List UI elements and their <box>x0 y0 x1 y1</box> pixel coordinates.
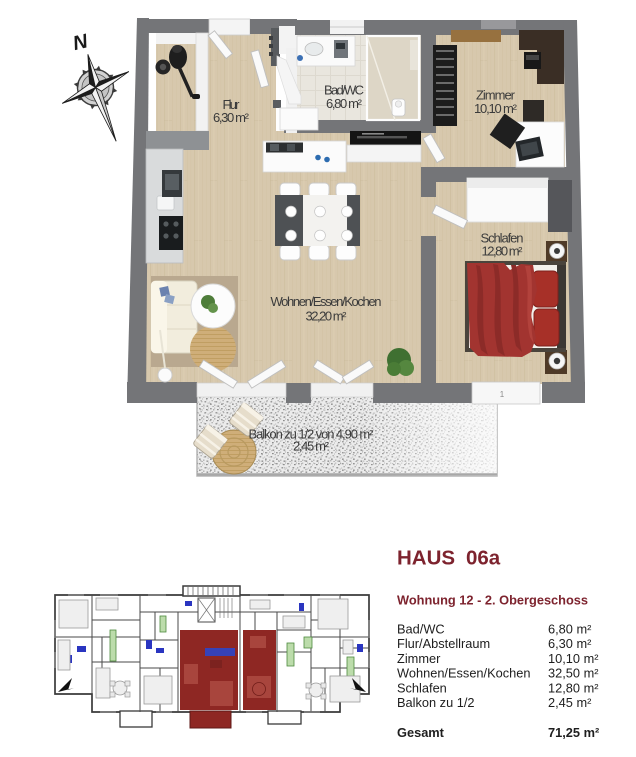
svg-text:6,80 m²: 6,80 m² <box>548 622 592 637</box>
svg-text:2,45 m²: 2,45 m² <box>293 438 330 453</box>
svg-text:10,10 m²: 10,10 m² <box>548 651 599 666</box>
svg-text:6,30 m²: 6,30 m² <box>213 110 250 125</box>
svg-text:1: 1 <box>500 390 505 399</box>
svg-text:32,20 m²: 32,20 m² <box>306 309 348 324</box>
svg-text:12,80 m²: 12,80 m² <box>548 680 599 695</box>
svg-text:10,10 m²: 10,10 m² <box>474 101 518 116</box>
svg-text:Wohnen/Essen/Kochen: Wohnen/Essen/Kochen <box>271 294 382 309</box>
svg-text:Wohnen/Essen/Kochen: Wohnen/Essen/Kochen <box>397 666 531 681</box>
svg-text:HAUS: HAUS <box>397 547 455 570</box>
svg-text:32,50 m²: 32,50 m² <box>548 666 599 681</box>
svg-text:Zimmer: Zimmer <box>397 651 441 666</box>
svg-text:Wohnung 12 - 2. Obergeschoss: Wohnung 12 - 2. Obergeschoss <box>397 593 588 608</box>
svg-text:N: N <box>71 30 91 55</box>
svg-text:06a: 06a <box>466 547 501 570</box>
svg-text:6,30 m²: 6,30 m² <box>548 636 592 651</box>
svg-text:Gesamt: Gesamt <box>397 725 445 740</box>
svg-text:71,25 m²: 71,25 m² <box>548 725 599 740</box>
svg-text:6,80 m²: 6,80 m² <box>326 96 363 111</box>
svg-text:12,80 m²: 12,80 m² <box>482 244 524 259</box>
svg-text:Schlafen: Schlafen <box>397 680 447 695</box>
svg-text:Balkon zu 1/2: Balkon zu 1/2 <box>397 695 475 710</box>
svg-text:Bad/WC: Bad/WC <box>397 622 445 637</box>
svg-text:Flur/Abstellraum: Flur/Abstellraum <box>397 636 490 651</box>
svg-text:2,45 m²: 2,45 m² <box>548 695 592 710</box>
